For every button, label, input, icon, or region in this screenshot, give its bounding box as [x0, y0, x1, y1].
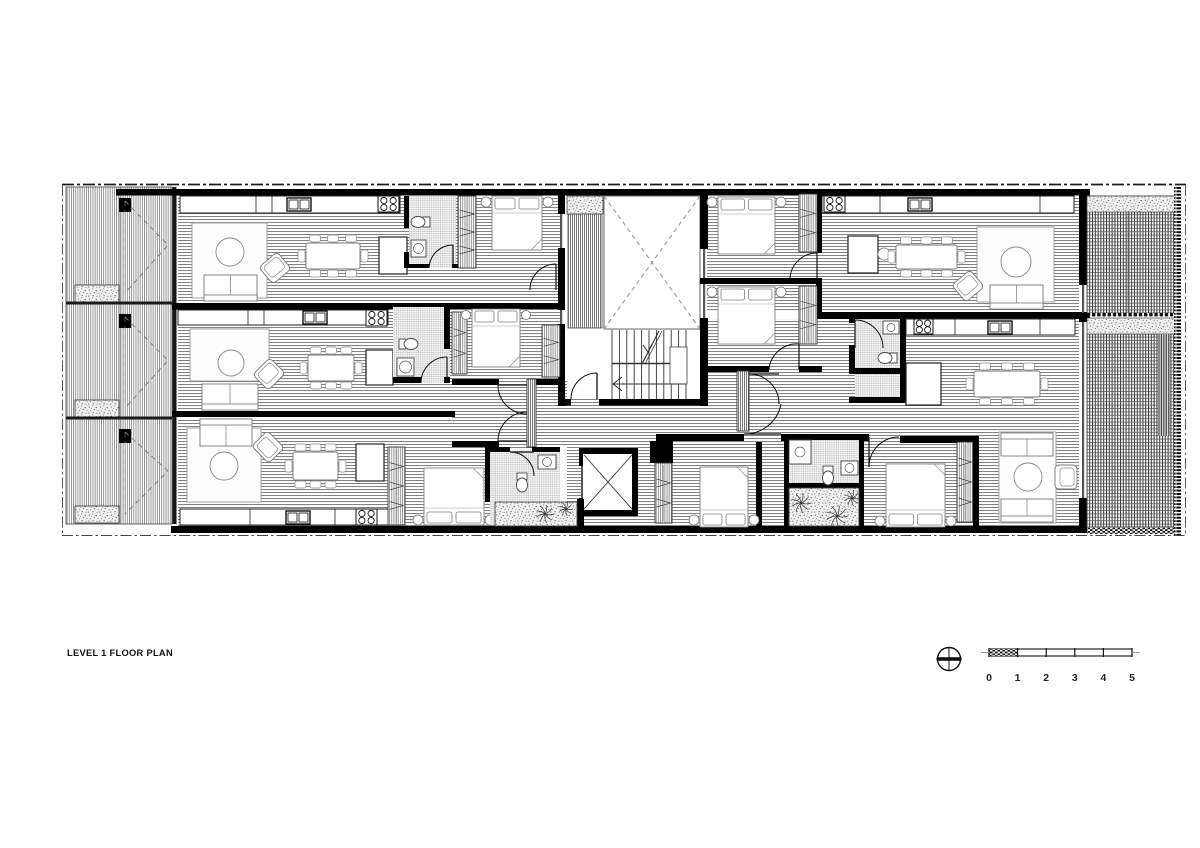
svg-text:LEVEL 1 FLOOR PLAN: LEVEL 1 FLOOR PLAN — [67, 648, 173, 658]
svg-text:1: 1 — [1015, 672, 1021, 684]
svg-text:3: 3 — [1072, 672, 1078, 684]
svg-text:5: 5 — [1129, 672, 1135, 684]
svg-text:4: 4 — [1100, 672, 1106, 684]
svg-text:2: 2 — [1043, 672, 1049, 684]
svg-text:0: 0 — [986, 672, 992, 684]
